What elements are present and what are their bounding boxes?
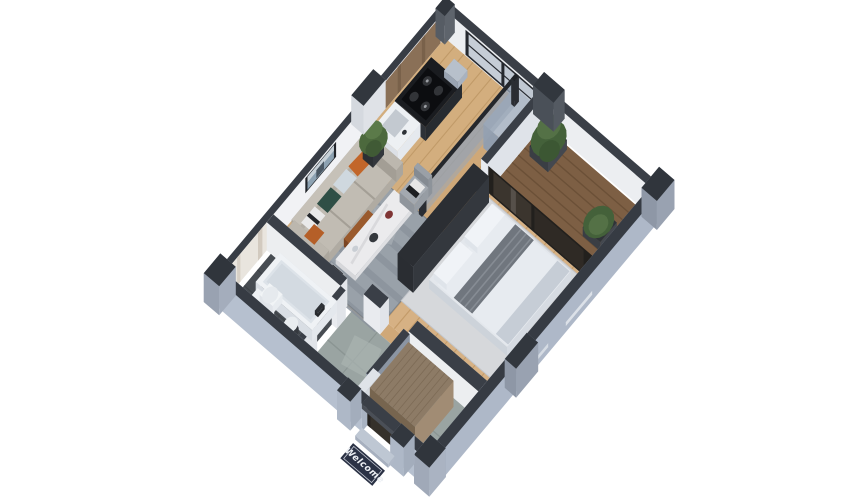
wood-panel-seam	[422, 35, 425, 66]
balcony-door-reflection	[511, 187, 516, 214]
wood-panel-seam	[398, 63, 401, 94]
floorplan-render: Welcome	[0, 0, 850, 499]
partition-post	[511, 73, 519, 107]
marble-vein	[258, 228, 262, 261]
isometric-floorplan: Welcome	[0, 0, 850, 499]
marble-vein	[237, 254, 240, 286]
